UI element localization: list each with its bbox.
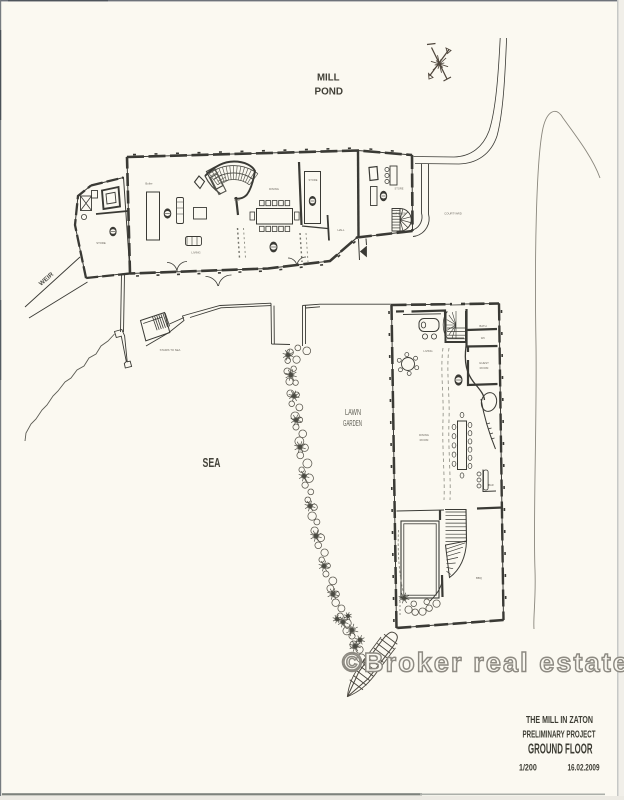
svg-text:WC: WC [481, 336, 485, 340]
svg-text:MILL: MILL [317, 72, 340, 84]
svg-text:ROOM: ROOM [420, 438, 429, 442]
svg-text:Boiler: Boiler [145, 182, 152, 186]
svg-text:DINING: DINING [269, 187, 279, 191]
svg-text:BAR: BAR [234, 198, 239, 202]
svg-text:GROUND FLOOR: GROUND FLOOR [528, 742, 593, 758]
svg-text:PRELIMINARY PROJECT: PRELIMINARY PROJECT [523, 730, 596, 741]
svg-text:LIVING: LIVING [191, 251, 200, 255]
svg-text:STORE: STORE [395, 187, 404, 191]
svg-text:LAWN: LAWN [345, 407, 361, 417]
svg-text:16.02.2009: 16.02.2009 [568, 763, 600, 773]
svg-text:©Broker real estate: ©Broker real estate [342, 648, 624, 678]
svg-text:DINING: DINING [419, 433, 429, 437]
svg-text:STAIRS TO SEA: STAIRS TO SEA [160, 348, 181, 352]
svg-text:1/200: 1/200 [519, 763, 537, 773]
svg-text:LIVING: LIVING [423, 349, 432, 353]
svg-text:STORE: STORE [96, 241, 106, 245]
svg-text:BBQ: BBQ [476, 576, 483, 580]
svg-text:THE MILL IN ZATON: THE MILL IN ZATON [526, 715, 593, 726]
svg-text:SEA: SEA [203, 456, 221, 470]
svg-text:COURTYARD: COURTYARD [444, 212, 461, 216]
svg-text:BAR: BAR [488, 483, 493, 487]
svg-text:ROOM: ROOM [480, 366, 489, 370]
svg-text:GUEST: GUEST [479, 361, 489, 365]
svg-text:BATH: BATH [479, 324, 486, 328]
svg-text:POND: POND [315, 86, 344, 98]
svg-text:STORE: STORE [309, 178, 318, 182]
svg-text:HALL: HALL [338, 228, 345, 232]
svg-text:GARDEN: GARDEN [343, 418, 362, 428]
